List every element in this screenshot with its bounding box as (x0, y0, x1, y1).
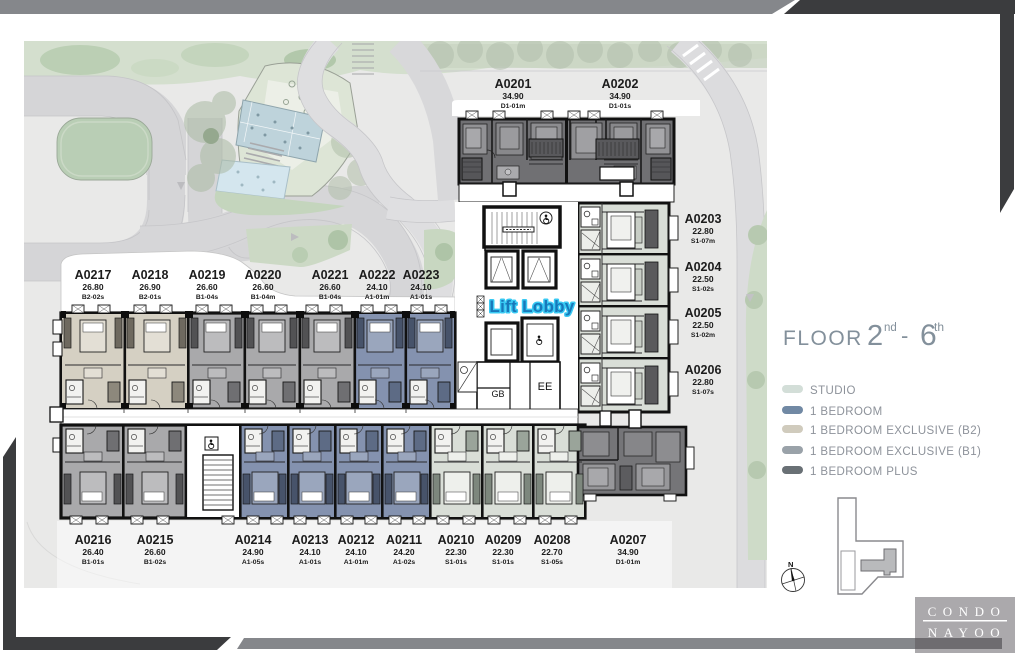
svg-text:A0221: A0221 (312, 268, 349, 282)
svg-text:A0215: A0215 (137, 533, 174, 547)
svg-text:A1-02s: A1-02s (393, 559, 416, 566)
svg-text:EE: EE (538, 381, 553, 393)
svg-text:B1-04s: B1-04s (319, 294, 342, 301)
svg-text:B1-01s: B1-01s (82, 559, 105, 566)
svg-text:N: N (788, 560, 793, 569)
svg-text:A0222: A0222 (359, 268, 396, 282)
svg-text:A0202: A0202 (602, 77, 639, 91)
svg-text:24.20: 24.20 (393, 547, 415, 557)
svg-text:A0203: A0203 (685, 212, 722, 226)
svg-text:22.80: 22.80 (692, 377, 714, 387)
svg-text:26.60: 26.60 (252, 282, 274, 292)
svg-text:B1-04m: B1-04m (251, 294, 276, 301)
svg-text:B2-01s: B2-01s (139, 294, 162, 301)
svg-text:22.30: 22.30 (492, 547, 514, 557)
svg-text:A1-01m: A1-01m (344, 559, 369, 566)
svg-text:S1-02m: S1-02m (691, 332, 715, 339)
svg-text:A0206: A0206 (685, 363, 722, 377)
svg-text:Lift Lobby: Lift Lobby (489, 297, 574, 316)
svg-text:22.50: 22.50 (692, 274, 714, 284)
svg-text:34.90: 34.90 (617, 547, 639, 557)
svg-text:1 BEDROOM: 1 BEDROOM (810, 406, 883, 418)
svg-text:A0216: A0216 (75, 533, 112, 547)
svg-text:A0223: A0223 (403, 268, 440, 282)
svg-text:1 BEDROOM EXCLUSIVE (B2): 1 BEDROOM EXCLUSIVE (B2) (810, 425, 981, 437)
svg-text:A0210: A0210 (438, 533, 475, 547)
svg-text:D1-01m: D1-01m (501, 103, 526, 110)
svg-text:22.80: 22.80 (692, 226, 714, 236)
svg-text:nd: nd (884, 322, 897, 334)
svg-text:B2-02s: B2-02s (82, 294, 105, 301)
svg-text:B1-02s: B1-02s (144, 559, 167, 566)
svg-text:24.10: 24.10 (299, 547, 321, 557)
svg-text:22.50: 22.50 (692, 320, 714, 330)
svg-text:STUDIO: STUDIO (810, 385, 856, 397)
svg-text:26.60: 26.60 (144, 547, 166, 557)
svg-text:S1-02s: S1-02s (692, 286, 714, 293)
svg-text:24.10: 24.10 (366, 282, 388, 292)
svg-text:34.90: 34.90 (609, 91, 631, 101)
svg-text:A0205: A0205 (685, 306, 722, 320)
svg-text:NAYOO: NAYOO (928, 625, 1006, 640)
svg-text:S1-05s: S1-05s (541, 559, 563, 566)
svg-text:24.10: 24.10 (410, 282, 432, 292)
svg-text:26.60: 26.60 (196, 282, 218, 292)
svg-text:th: th (934, 320, 944, 334)
svg-text:22.70: 22.70 (541, 547, 563, 557)
svg-text:A0217: A0217 (75, 268, 112, 282)
svg-text:A0201: A0201 (495, 77, 532, 91)
svg-text:A0212: A0212 (338, 533, 375, 547)
svg-text:A0207: A0207 (610, 533, 647, 547)
svg-text:A0213: A0213 (292, 533, 329, 547)
svg-text:S1-01s: S1-01s (445, 559, 467, 566)
svg-text:A0214: A0214 (235, 533, 272, 547)
svg-text:A0218: A0218 (132, 268, 169, 282)
svg-text:A1-05s: A1-05s (242, 559, 265, 566)
svg-text:26.90: 26.90 (139, 282, 161, 292)
svg-text:24.10: 24.10 (345, 547, 367, 557)
svg-text:D1-01m: D1-01m (616, 559, 641, 566)
svg-text:D1-01s: D1-01s (609, 103, 632, 110)
svg-text:S1-01s: S1-01s (492, 559, 514, 566)
svg-text:A0208: A0208 (534, 533, 571, 547)
svg-text:A1-01m: A1-01m (365, 294, 390, 301)
svg-text:S1-07s: S1-07s (692, 389, 714, 396)
svg-text:A0219: A0219 (189, 268, 226, 282)
svg-text:A0204: A0204 (685, 260, 722, 274)
svg-text:A0209: A0209 (485, 533, 522, 547)
svg-text:22.30: 22.30 (445, 547, 467, 557)
svg-text:24.90: 24.90 (242, 547, 264, 557)
svg-text:FLOOR: FLOOR (783, 327, 863, 350)
svg-text:26.60: 26.60 (319, 282, 341, 292)
svg-text:B1-04s: B1-04s (196, 294, 219, 301)
svg-text:26.40: 26.40 (82, 547, 104, 557)
svg-text:2: 2 (867, 320, 883, 352)
svg-text:A0220: A0220 (245, 268, 282, 282)
svg-text:34.90: 34.90 (502, 91, 524, 101)
svg-text:S1-07m: S1-07m (691, 238, 715, 245)
svg-text:A0211: A0211 (386, 533, 422, 547)
svg-text:1 BEDROOM PLUS: 1 BEDROOM PLUS (810, 466, 918, 478)
svg-text:A1-01s: A1-01s (410, 294, 433, 301)
svg-text:A1-01s: A1-01s (299, 559, 322, 566)
svg-text:-: - (901, 323, 908, 348)
svg-text:GB: GB (491, 389, 504, 399)
svg-text:26.80: 26.80 (82, 282, 104, 292)
svg-text:CONDO: CONDO (928, 604, 1007, 619)
svg-text:1 BEDROOM EXCLUSIVE (B1): 1 BEDROOM EXCLUSIVE (B1) (810, 446, 981, 458)
